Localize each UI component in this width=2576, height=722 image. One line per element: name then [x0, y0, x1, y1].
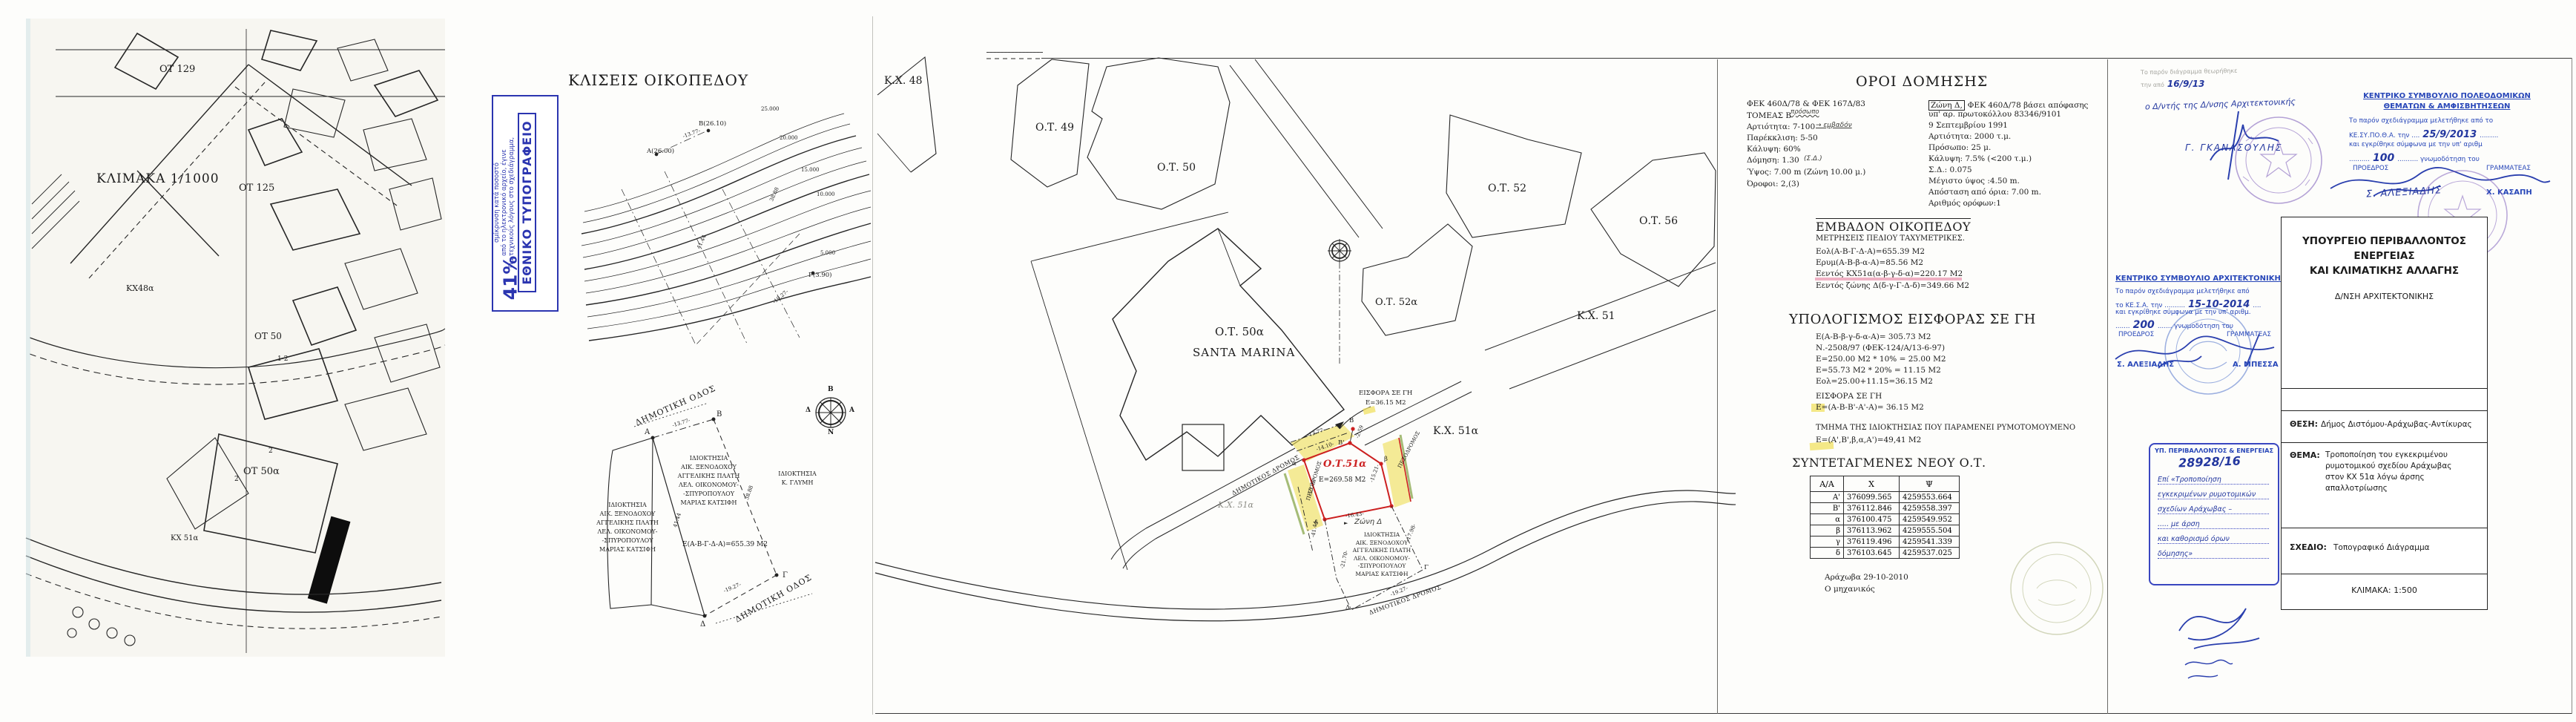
- coords-cell: 4259537.025: [1900, 548, 1960, 559]
- compass-n: Β: [828, 386, 834, 393]
- siteplan-new-ot-label: Ο.Τ.51α: [1323, 459, 1366, 470]
- terms-left-0: ΦΕΚ 460Δ/78 & ΦΕΚ 167Δ/83: [1747, 99, 1865, 108]
- siteplan-label-ot52a: Ο.Τ. 52α: [1375, 297, 1417, 308]
- terms-left-6: Ύψος: 7.00 m (Ζώνη 10.00 μ.): [1747, 168, 1865, 177]
- theorisi-note-line2: την από 16/9/13: [2141, 77, 2204, 91]
- engineer-label: Ο μηχανικός: [1825, 585, 1875, 594]
- coords-row: β376113.9624259555.504: [1811, 525, 1960, 536]
- owner-line: -ΣΠΥΡΟΠΟΥΛΟΥ: [583, 536, 672, 545]
- sxedio-value: Τοπογραφικό Διάγραμμα: [2333, 543, 2430, 552]
- owner-line: ΜΑΡΙΑΣ ΚΑΤΣΙΦΗ: [583, 545, 672, 554]
- plot-area-label: Ε(Α-Β-Γ-Δ-Α)=655.39 Μ2: [682, 541, 768, 548]
- owner-line: ΛΕΛ. ΟΙΚΟΝΟΜΟΥ-: [1341, 555, 1423, 563]
- thema-line-2: ρυμοτομικού σχεδίου Αράχωβας: [2325, 462, 2451, 470]
- slope-point-g: Γ(3.90): [808, 272, 831, 279]
- klimaka-value: ΚΛΙΜΑΚΑ: 1:500: [2282, 585, 2487, 595]
- plot-owner-center: ΙΔΙΟΚΤΗΣΙΑ ΑΙΚ. ΞΕΝΟΔΟΧΟΥ ΑΓΓΕΛΙΚΗΣ ΠΛΑΤ…: [666, 454, 751, 508]
- area-line-0: Εολ(Α-Β-Γ-Δ-Α)=655.39 Μ2: [1816, 247, 1925, 256]
- slope-point-a: Α(26.00): [647, 148, 674, 155]
- siteplan-label-kx48: Κ.Χ. 48: [884, 75, 923, 87]
- thema-line-1: Τροποποίηση του εγκεκριμένου: [2325, 450, 2448, 459]
- eisfora-head: ΕΙΣΦΟΡΑ ΣΕ ΓΗ: [1816, 392, 1882, 401]
- kesypotha-title1: ΚΕΝΤΡΙΚΟ ΣΥΜΒΟΥΛΙΟ ΠΟΛΕΟΔΟΜΙΚΩΝ: [2346, 92, 2548, 100]
- coords-cell: α: [1811, 514, 1844, 525]
- coords-header-x: Χ: [1844, 476, 1900, 492]
- terms-right-9: Αριθμός ορόφων:1: [1928, 199, 2001, 208]
- theorisi-note-line1: Το παρόν διάγραμμα θεωρήθηκε: [2141, 68, 2238, 76]
- print-stamp-note-1: Για τεχνικούς λόγους στο σχεδιάγραμμα,: [508, 137, 515, 268]
- plot-pt-g: Γ: [783, 571, 788, 580]
- sheet-right-border: [2572, 58, 2572, 714]
- ypen-box-header: ΥΠ. ΠΕΡΙΒΑΛΛΟΝΤΟΣ & ΕΝΕΡΓΕΙΑΣ: [2150, 447, 2278, 454]
- map-scale-label: ΚΛΙΜΑΚΑ 1/1000: [96, 171, 220, 186]
- map-label-1-2: 1-2: [277, 355, 289, 363]
- map-label-ot129: ΟΤ 129: [159, 64, 195, 75]
- siteplan-zone-marker: ►: [1344, 520, 1348, 526]
- thema-line-4: απαλλοτρίωσης: [2325, 484, 2388, 493]
- titleblock-divider-4: [2282, 528, 2487, 528]
- ypen-hand-line-2: σχεδίων Αράχωβας –: [2158, 505, 2269, 514]
- faint-round-stamp: [2001, 533, 2112, 644]
- compass-s: Ν: [828, 429, 834, 436]
- titleblock-divider-1: [2282, 388, 2487, 389]
- terms-title: ΟΡΟΙ ΔΟΜΗΣΗΣ: [1856, 73, 1988, 90]
- theorisi-note-mid: την από: [2141, 82, 2164, 88]
- ypen-hand-line-1: εγκεκριμένων ρυμοτομικών: [2158, 490, 2269, 499]
- coords-cell: 4259553.664: [1900, 492, 1960, 503]
- area-line-1: Ερυμ(Α-Β-β-α-Α)=85.56 Μ2: [1816, 258, 1923, 267]
- pt-D: Δ: [1345, 604, 1350, 611]
- ypen-signature: [2172, 586, 2268, 653]
- kesypotha-title2: ΘΕΜΑΤΩΝ & ΑΜΦΙΣΒΗΤΗΣΕΩΝ: [2346, 102, 2548, 111]
- siteplan-label-ot52: Ο.Τ. 52: [1488, 183, 1526, 194]
- print-stamp-note-3: σμίκρυνση κατά ποσοστό: [493, 163, 501, 243]
- siteplan-label-kx51a-pencil: Κ.Χ. 51α: [1218, 500, 1254, 510]
- kesypotha-date: 25/9/2013: [2422, 129, 2477, 140]
- coords-cell: 376113.962: [1844, 525, 1900, 536]
- map-label-2a: 2: [269, 447, 273, 455]
- plot-pt-a: Α: [645, 428, 650, 436]
- owner-line: ΑΓΓΕΛΙΚΗΣ ΠΛΑΤΗ: [1341, 547, 1423, 555]
- calc-line-1: Ν.-2508/97 (ΦΕΚ-124/Α/13-6-97): [1816, 344, 1945, 352]
- cadastral-map-drawing: [26, 19, 445, 657]
- remnant-head: ΤΜΗΜΑ ΤΗΣ ΙΔΙΟΚΤΗΣΙΑΣ ΠΟΥ ΠΑΡΑΜΕΝΕΙ ΡΥΜΟ…: [1816, 424, 2075, 432]
- calc-title: ΥΠΟΛΟΓΙΣΜΟΣ ΕΙΣΦΟΡΑΣ ΣΕ ΓΗ: [1789, 312, 2036, 327]
- terms-left-3: Παρέκκλιση: 5-50: [1747, 134, 1818, 142]
- ypen-small-scribble: [2182, 656, 2234, 683]
- calc-line-3: Ε=55.73 Μ2 * 20% = 11.15 Μ2: [1816, 366, 1941, 375]
- theorisi-date: 16/9/13: [2167, 79, 2205, 89]
- print-stamp-note-2: από το ηλεκτρονικό αρχείο, έγινε: [501, 149, 508, 256]
- siteplan-label-ot50: Ο.Τ. 50: [1157, 162, 1196, 174]
- owner-line: ΑΙΚ. ΞΕΝΟΔΟΧΟΥ: [666, 463, 751, 472]
- slope-point-b: Β(26.10): [699, 120, 726, 128]
- ministry-line-1: ΥΠΟΥΡΓΕΙΟ ΠΕΡΙΒΑΛΛΟΝΤΟΣ: [2282, 235, 2487, 247]
- terms-hand-sd: (Σ.Δ.): [1804, 155, 1822, 163]
- siteplan-label-santa-marina: SANTA MARINA: [1193, 346, 1295, 359]
- terms-right-0: ΦΕΚ 460Δ/78 βάσει απόφασης: [1968, 101, 2089, 110]
- siteplan-new-ot-area: Ε=269.58 Μ2: [1319, 476, 1366, 484]
- map-label-ot125: ΟΤ 125: [239, 183, 274, 194]
- coords-header-y: Ψ: [1900, 476, 1960, 492]
- coords-cell: γ: [1811, 536, 1844, 548]
- compass-e: Α: [849, 407, 854, 414]
- compass-icon: [813, 395, 849, 430]
- coords-cell: 4259541.339: [1900, 536, 1960, 548]
- owner-line: ΙΔΙΟΚΤΗΣΙΑ: [764, 470, 831, 479]
- pt-B2: Β': [1338, 439, 1345, 447]
- terms-left-2: Αρτιότητα: 7-100: [1747, 122, 1815, 131]
- terms-hand-prosopo: πρόσωπο: [1791, 108, 1819, 116]
- terms-right-5: Κάλυψη: 7.5% (<200 τ.μ.): [1928, 154, 2032, 163]
- sheet-left-edge: [872, 16, 873, 715]
- coordinates-table: Α/Α Χ Ψ Α'376099.5654259553.664 Β'376112…: [1810, 476, 1960, 559]
- titleblock-divider-3: [2282, 442, 2487, 443]
- coords-cell: β: [1811, 525, 1844, 536]
- terms-right-2: 9 Σεπτεμβρίου 1991: [1928, 121, 2008, 130]
- thema-label: ΘΕΜΑ:: [2290, 450, 2320, 460]
- plot-owner-left: ΙΔΙΟΚΤΗΣΙΑ ΑΙΚ. ΞΕΝΟΔΟΧΟΥ ΑΓΓΕΛΙΚΗΣ ΠΛΑΤ…: [583, 501, 672, 554]
- terms-left-4: Κάλυψη: 60%: [1747, 145, 1801, 154]
- coords-cell: 4259558.397: [1900, 503, 1960, 514]
- compass-w: Δ: [806, 407, 811, 414]
- ypen-protocol-number: 28928/16: [2178, 454, 2241, 470]
- area-sub: ΜΕΤΡΗΣΕΙΣ ΠΕΔΙΟΥ ΤΑΧΥΜΕΤΡΙΚΕΣ.: [1816, 234, 1965, 243]
- coords-row: α376100.4754259549.952: [1811, 514, 1960, 525]
- slopes-title: ΚΛΙΣΕΙΣ ΟΙΚΟΠΕΔΟΥ: [568, 71, 748, 89]
- print-stamp-percent: 41%: [499, 256, 521, 301]
- calc-line-0: Ε(Α-Β-β-γ-δ-α-Α)= 305.73 Μ2: [1816, 332, 1931, 341]
- area-title: ΕΜΒΑΔΟΝ ΟΙΚΟΠΕΔΟΥ: [1816, 218, 1971, 234]
- calc-line-4: Εολ=25.00+11.15=36.15 Μ2: [1816, 377, 1933, 386]
- ministry-line-3: ΚΑΙ ΚΛΙΜΑΤΙΚΗΣ ΑΛΛΑΓΗΣ: [2282, 265, 2487, 277]
- owner-line: ΙΔΙΟΚΤΗΣΙΑ: [666, 454, 751, 463]
- contour-label-25: 25.000: [761, 106, 780, 112]
- terms-right-4: Πρόσωπο: 25 μ.: [1928, 143, 1991, 152]
- owner-line: ΑΓΓΕΛΙΚΗΣ ΠΛΑΤΗ: [666, 472, 751, 481]
- coords-header-aa: Α/Α: [1811, 476, 1844, 492]
- owner-line: ΑΓΓΕΛΙΚΗΣ ΠΛΑΤΗ: [583, 519, 672, 528]
- pt-B: Β: [1349, 417, 1354, 424]
- coords-cell: 376099.565: [1844, 492, 1900, 503]
- terms-right-7: Μέγιστο ύψος :4.50 m.: [1928, 177, 2020, 186]
- coords-cell: 376100.475: [1844, 514, 1900, 525]
- plot-pt-d: Δ: [700, 620, 705, 629]
- map-label-2b: 2: [234, 476, 239, 483]
- sxedio-label: ΣΧΕΔΙΟ:: [2290, 542, 2327, 552]
- terms-right-3: Αρτιότητα: 2000 τ.μ.: [1928, 132, 2011, 141]
- area-line-2-pink-underline: [1815, 278, 1962, 280]
- coords-cell: Α': [1811, 492, 1844, 503]
- coords-cell: δ: [1811, 548, 1844, 559]
- compass-rose: Β Α Ν Δ: [810, 387, 851, 441]
- coords-cell: 376103.645: [1844, 548, 1900, 559]
- owner-line: Κ. ΓΛΥΜΗ: [764, 479, 831, 488]
- owner-line: ΛΕΛ. ΟΙΚΟΝΟΜΟΥ-: [666, 481, 751, 490]
- terms-right-8: Απόσταση από όρια: 7.00 m.: [1928, 188, 2041, 197]
- coords-cell: 4259555.504: [1900, 525, 1960, 536]
- title-block: ΥΠΟΥΡΓΕΙΟ ΠΕΡΙΒΑΛΛΟΝΤΟΣ ΕΝΕΡΓΕΙΑΣ ΚΑΙ ΚΛ…: [2281, 217, 2488, 610]
- owner-line: ΛΕΛ. ΟΙΚΟΝΟΜΟΥ-: [583, 528, 672, 536]
- owner-line: ΑΙΚ. ΞΕΝΟΔΟΧΟΥ: [583, 510, 672, 519]
- plot-owner-right: ΙΔΙΟΚΤΗΣΙΑ Κ. ΓΛΥΜΗ: [764, 470, 831, 488]
- terms-left-7: Όροφοι: 2,(3): [1747, 180, 1799, 188]
- kesypotha-line1: Το παρόν σχεδιάγραμμα μελετήθηκε από το: [2349, 117, 2493, 125]
- divider-siteplan-terms: [1717, 59, 1718, 714]
- coords-title: ΣΥΝΤΕΤΑΓΜΕΝΕΣ ΝΕΟΥ Ο.Τ.: [1792, 456, 1986, 470]
- coords-cell: 376112.846: [1844, 503, 1900, 514]
- siteplan-eisfora-title: ΕΙΣΦΟΡΑ ΣΕ ΓΗ: [1359, 390, 1412, 397]
- thesi-label: ΘΕΣΗ:: [2290, 419, 2318, 429]
- terms-zone-box: Ζώνη Δ,: [1928, 100, 1965, 111]
- terms-right-1: υπ' αρ. πρωτοκόλλου 83346/9101: [1928, 110, 2061, 119]
- siteplan-label-kx51a: Κ.Χ. 51α: [1433, 425, 1478, 437]
- siteplan-label-ot49: Ο.Τ. 49: [1035, 122, 1074, 134]
- contour-label-15: 15.000: [801, 167, 820, 173]
- terms-hand-emvadon: → εμβαδόν: [1816, 122, 1852, 129]
- owner-line: ΜΑΡΙΑΣ ΚΑΤΣΙΦΗ: [1341, 571, 1423, 579]
- kesa-title: ΚΕΝΤΡΙΚΟ ΣΥΜΒΟΥΛΙΟ ΑΡΧΙΤΕΚΤΟΝΙΚΗΣ: [2115, 275, 2286, 283]
- coords-header-row: Α/Α Χ Ψ: [1811, 476, 1960, 492]
- coords-row: Β'376112.8464259558.397: [1811, 503, 1960, 514]
- pt-a: α: [1292, 460, 1297, 467]
- site-plan-drawing: [875, 15, 1717, 716]
- coords-cell: Β': [1811, 503, 1844, 514]
- blue-round-stamp: [2160, 303, 2256, 399]
- ypen-hand-line-0: Επί «Τροποποίηση: [2158, 476, 2269, 485]
- contour-label-10: 10.000: [817, 191, 835, 197]
- coords-row: δ376103.6454259537.025: [1811, 548, 1960, 559]
- ministry-line-2: ΕΝΕΡΓΕΙΑΣ: [2282, 250, 2487, 262]
- owner-line: ΜΑΡΙΑΣ ΚΑΤΣΙΦΗ: [666, 499, 751, 508]
- purple-round-stamp-1: [2231, 111, 2326, 209]
- siteplan-label-kx51: Κ.Χ. 51: [1577, 310, 1615, 322]
- contour-drawing: [577, 100, 872, 349]
- department-line: Δ/ΝΣΗ ΑΡΧΙΤΕΚΤΟΝΙΚΗΣ: [2282, 292, 2487, 301]
- coords-cell: 376119.496: [1844, 536, 1900, 548]
- map-label-ot50a: ΟΤ 50α: [243, 466, 280, 477]
- ypen-hand-line-3: ..... με άρση: [2158, 520, 2269, 529]
- kesypotha-line3: και εγκρίθηκε σύμφωνα με την υπ' αριθμ: [2349, 141, 2483, 148]
- plot-pt-b: Β: [717, 410, 722, 419]
- map-label-ot50: ΟΤ 50: [254, 331, 282, 341]
- titleblock-divider-2: [2282, 410, 2487, 411]
- coords-row: Α'376099.5654259553.664: [1811, 492, 1960, 503]
- map-label-kx51a: ΚΧ 51α: [171, 534, 198, 542]
- siteplan-label-ot56: Ο.Τ. 56: [1639, 215, 1678, 227]
- calc-line-2: Ε=250.00 Μ2 * 10% = 25.00 Μ2: [1816, 355, 1946, 364]
- area-line-3: Εεντός ζώνης Δ(δ-γ-Γ-Δ-δ)=349.66 Μ2: [1816, 281, 1969, 290]
- siteplan-zone-note: Ζώνη Δ: [1354, 518, 1382, 526]
- topographic-diagram-sheet: ΟΤ 129 ΟΤ 125 ΚΛΙΜΑΚΑ 1/1000 ΚΧ48α ΟΤ 50…: [0, 0, 2576, 722]
- ypen-box-stamp: ΥΠ. ΠΕΡΙΒΑΛΛΟΝΤΟΣ & ΕΝΕΡΓΕΙΑΣ 28928/16 Ε…: [2149, 443, 2279, 585]
- contour-label-5: 5.000: [820, 250, 835, 256]
- siteplan-label-ot50a: Ο.Τ. 50α: [1215, 325, 1264, 338]
- ypen-hand-line-4: και καθορισμό όρων: [2158, 535, 2269, 544]
- pt-b: β: [1384, 456, 1388, 463]
- owner-line: -ΣΠΥΡΟΠΟΥΛΟΥ: [666, 490, 751, 499]
- coords-row: γ376119.4964259541.339: [1811, 536, 1960, 548]
- siteplan-eisfora-area: Ε=36.15 Μ2: [1366, 399, 1406, 407]
- eisfora-line: Ε=(Α-Β-Β'-Α'-Α)= 36.15 Μ2: [1816, 403, 1924, 412]
- terms-right-6: Σ.Δ.: 0.075: [1928, 165, 1972, 174]
- kesypotha-line2-pre: ΚΕ.ΣΥ.ΠΟ.Θ.Α. την ....: [2349, 132, 2419, 140]
- terms-left-5: Δόμηση: 1.30: [1747, 156, 1799, 165]
- coords-cell: 4259549.952: [1900, 514, 1960, 525]
- titleblock-divider-5: [2282, 574, 2487, 574]
- pt-d: δ: [1314, 519, 1318, 527]
- pt-G: Γ: [1424, 564, 1429, 571]
- thesi-value: Δήμος Διστόμου-Αράχωβας-Αντίκυρας: [2321, 420, 2472, 429]
- map-label-kx48a: ΚΧ48α: [126, 283, 154, 293]
- owner-line: ΙΔΙΟΚΤΗΣΙΑ: [583, 501, 672, 510]
- terms-left-1: ΤΟΜΕΑΣ Β: [1747, 111, 1791, 120]
- thema-line-3: στον ΚΧ 51α λόγω άρσης: [2325, 473, 2425, 482]
- kesa-line1: Το παρόν σχεδιάγραμμα μελετήθηκε από: [2115, 288, 2250, 295]
- kesypotha-line2: ΚΕ.ΣΥ.ΠΟ.Θ.Α. την .... 25/9/2013 .......…: [2349, 128, 2498, 141]
- kesypotha-line2-post: .........: [2480, 132, 2498, 140]
- remnant-line: Ε=(Α',Β',β,α,Α')=49,41 Μ2: [1816, 436, 1921, 444]
- owner-line: -ΣΠΥΡΟΠΟΥΛΟΥ: [1341, 562, 1423, 571]
- ypen-hand-line-5: δόμησης»: [2158, 550, 2269, 559]
- contour-label-20: 20.000: [780, 135, 798, 141]
- place-date: Αράχωβα 29-10-2010: [1825, 573, 1908, 582]
